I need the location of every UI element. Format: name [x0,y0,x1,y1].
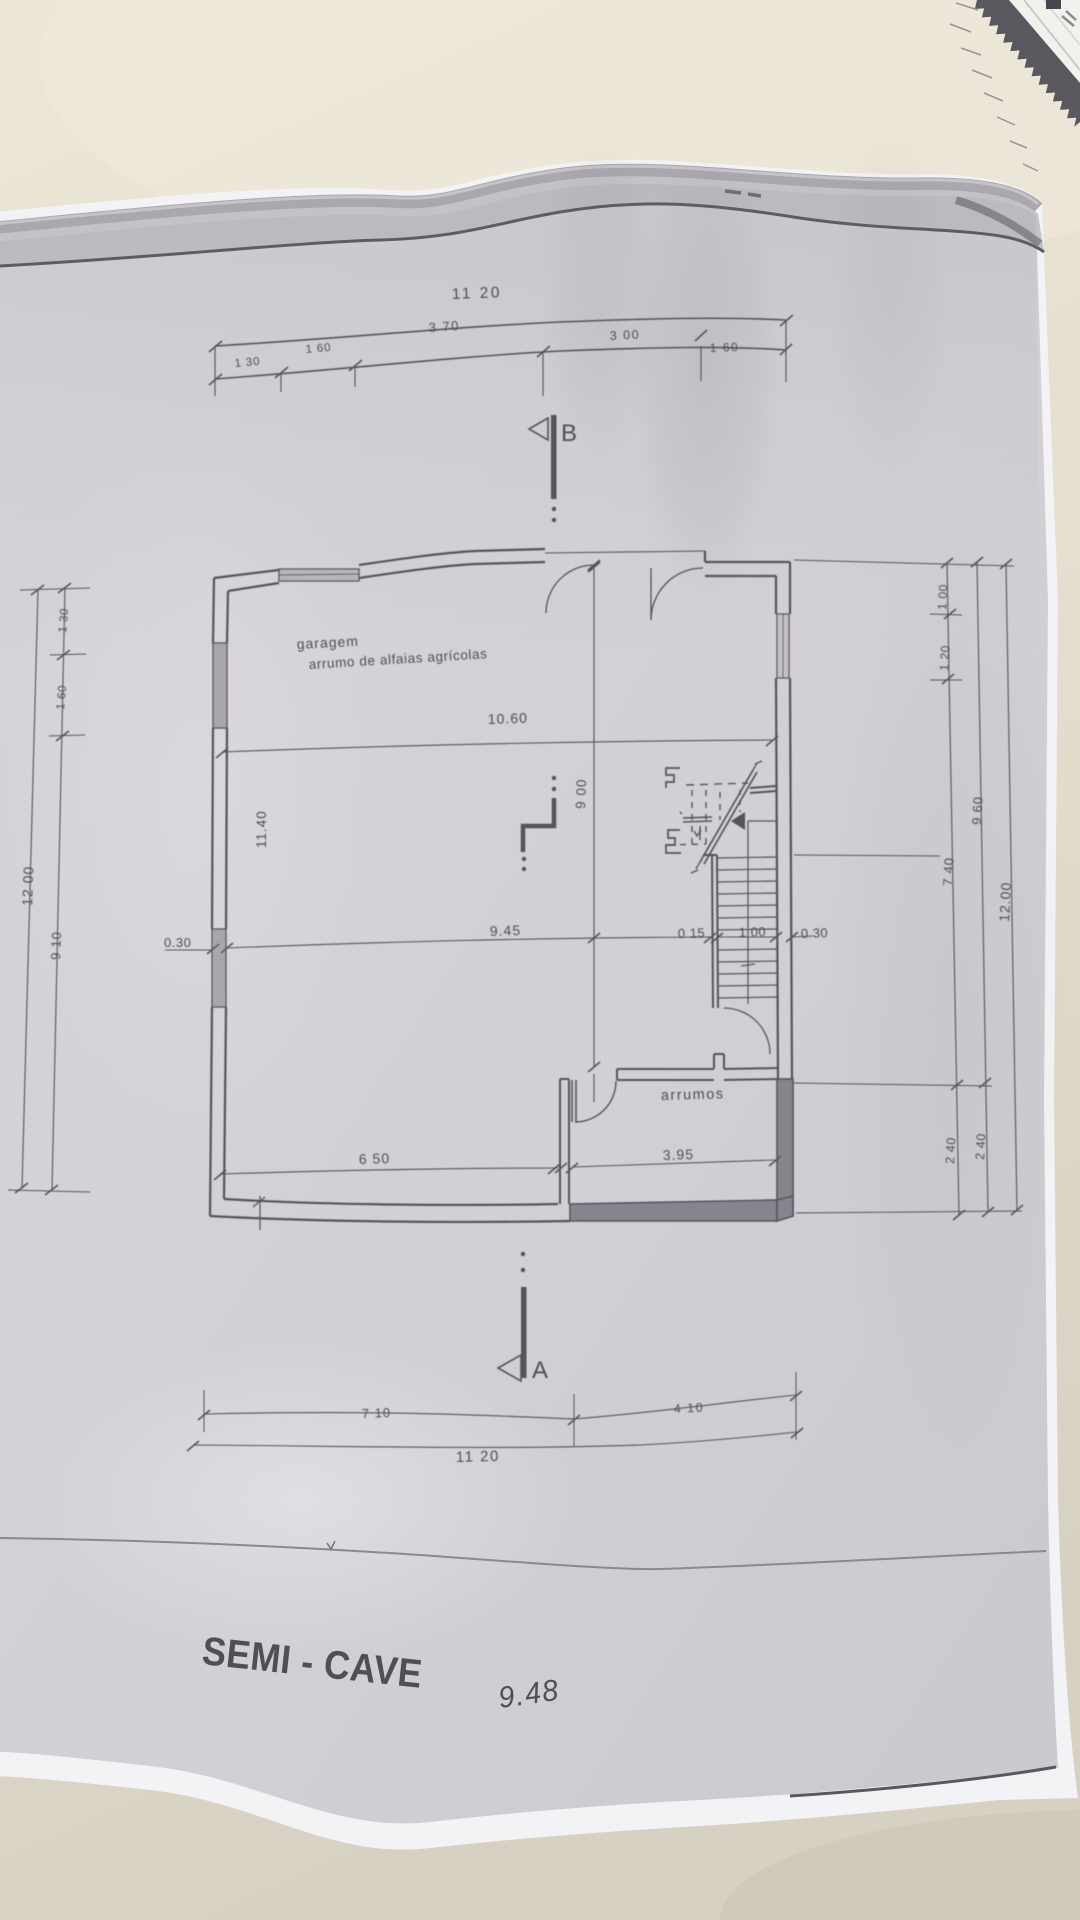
svg-text:9.45: 9.45 [490,922,522,939]
svg-text:11 20: 11 20 [452,284,503,303]
svg-text:0 15: 0 15 [678,925,706,941]
svg-text:4 10: 4 10 [673,1400,704,1416]
svg-text:B: B [561,420,577,447]
svg-text:2 40: 2 40 [943,1137,958,1164]
svg-text:1 60: 1 60 [305,342,332,356]
svg-text:6 50: 6 50 [359,1150,391,1167]
svg-text:1 60: 1 60 [710,340,740,355]
svg-text:garagem: garagem [296,633,359,652]
svg-text:9 00: 9 00 [573,778,589,809]
svg-text:1 00: 1 00 [935,584,950,610]
svg-text:arrumos: arrumos [661,1086,725,1104]
svg-text:A: A [532,1357,548,1384]
svg-text:1 30: 1 30 [57,608,71,634]
svg-text:12.00: 12.00 [996,881,1014,922]
svg-text:3 00: 3 00 [609,327,640,343]
svg-text:11 20: 11 20 [456,1448,500,1466]
svg-text:1 60: 1 60 [55,685,69,711]
svg-text:11.40: 11.40 [254,810,269,848]
svg-text:12 00: 12 00 [19,866,36,907]
svg-text:1 20: 1 20 [937,645,952,671]
svg-text:9 10: 9 10 [48,931,64,960]
svg-text:10.60: 10.60 [488,710,529,727]
svg-text:7 40: 7 40 [940,857,956,886]
svg-text:1 30: 1 30 [234,356,261,370]
svg-text:3.95: 3.95 [663,1146,695,1163]
svg-text:7 10: 7 10 [362,1405,392,1421]
svg-text:0.30: 0.30 [164,935,191,950]
svg-text:0 30: 0 30 [801,925,829,941]
svg-text:9 60: 9 60 [969,796,985,825]
svg-text:1 00: 1 00 [739,924,767,940]
svg-text:2 40: 2 40 [973,1133,988,1160]
svg-text:3 70: 3 70 [428,318,460,335]
